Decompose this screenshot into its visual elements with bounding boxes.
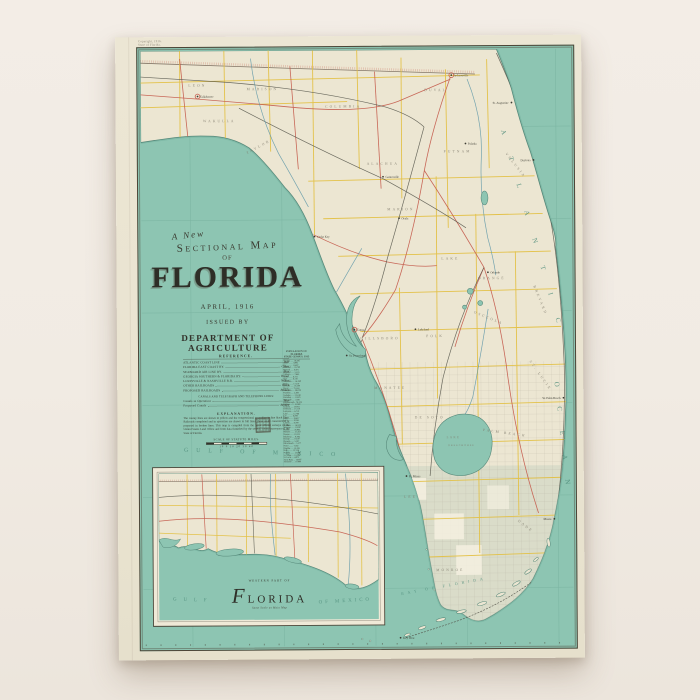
city-dot [553,518,555,520]
region-label: DUVAL [424,88,447,92]
region-label: PUTNAM [444,149,472,153]
region-label: LAKE [441,257,459,261]
region-label: LEON [188,84,206,88]
city-label: Tallahassee [200,95,214,99]
city-dot [511,102,513,104]
region-label: ORANGE [478,276,506,280]
city-dot [354,329,356,331]
region-label: MANATEE [374,386,406,390]
region-label: WAKULLA [203,119,236,123]
city-label: Ocala [401,216,409,220]
city-label: Palatka [468,142,477,146]
city-label: Miami [544,517,552,521]
city-dot [382,176,384,178]
city-label: Ft. Myers [409,474,421,478]
region-label: MADISON [247,87,279,91]
lake-okeechobee-label-1: LAKE [447,435,461,439]
city-label: St. Augustine [493,101,510,105]
map-frame: ATLANTIC OCEAN GULF OF MEXICO BAY OF FLO… [136,45,578,652]
region-label: MONROE [436,568,464,572]
plate-note-line1: Copyright, 1916. [138,40,258,44]
city-dot [197,96,199,98]
region-label: DE SOTO [415,415,445,419]
city-dot [465,143,467,145]
region-label: POLK [426,334,444,338]
region-label: LEE [404,495,417,499]
city-dot [398,217,400,219]
city-dot [415,328,417,330]
florida-map-svg: ATLANTIC OCEAN GULF OF MEXICO BAY OF FLO… [140,49,574,648]
city-label: Cedar Key [317,235,330,239]
region-label: ALACHUA [367,162,399,166]
lake-okeechobee-label-2: OKEECHOBEE [448,444,475,447]
city-label: Gainesville [385,175,399,179]
city-label: Orlando [490,270,500,274]
product-photo-background: ATLANTIC OCEAN GULF OF MEXICO BAY OF FLO… [0,0,700,700]
city-dot [346,355,348,357]
region-label: COLUMBIA [325,104,361,108]
city-label: Daytona [521,158,532,162]
city-dot [563,397,565,399]
inset-map: GULF OF MEXICO [153,466,385,626]
city-dot [400,637,402,639]
city-dot [487,271,489,273]
region-label: HILLSBORO [360,336,399,340]
city-label: Jacksonville [454,73,469,77]
vintage-florida-map-poster: ATLANTIC OCEAN GULF OF MEXICO BAY OF FLO… [115,35,585,661]
city-label: Lakeland [418,327,429,331]
city-label: W. Palm Beach [542,396,561,400]
city-label: St. Petersburg [349,354,366,358]
city-label: Tampa [357,328,366,332]
city-dot [533,159,535,161]
region-label: MARION [387,207,414,211]
city-label: Key West [403,636,415,640]
city-dot [406,475,408,477]
city-dot [314,236,316,238]
city-dot [450,74,452,76]
lake-george [481,191,488,205]
